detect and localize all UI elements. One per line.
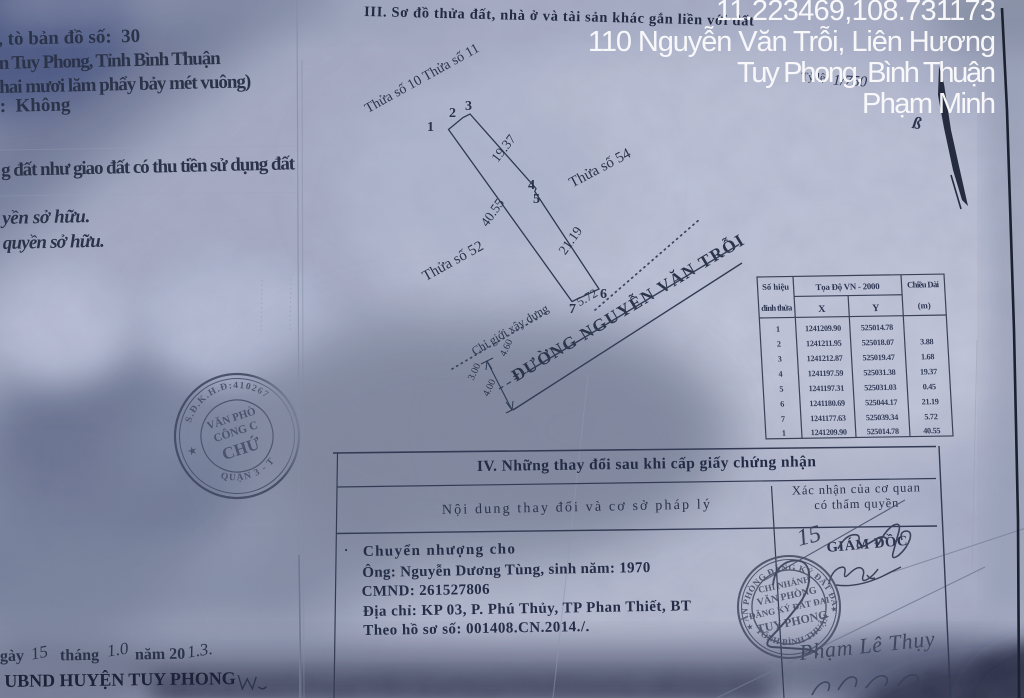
svg-text:4: 4 bbox=[528, 178, 535, 193]
svg-text:Y: Y bbox=[872, 303, 881, 314]
svg-text:(m): (m) bbox=[917, 300, 931, 310]
svg-text:Phạm Minh: Phạm Minh bbox=[862, 88, 996, 120]
svg-text:1241177.63: 1241177.63 bbox=[810, 414, 846, 424]
svg-text:19.37: 19.37 bbox=[920, 367, 938, 376]
svg-text:CMND: 261527806: CMND: 261527806 bbox=[361, 582, 490, 600]
svg-text:1241197.31: 1241197.31 bbox=[808, 384, 844, 394]
svg-text:năm 20: năm 20 bbox=[135, 646, 185, 664]
svg-text:11.223469,108.731173: 11.223469,108.731173 bbox=[716, 0, 996, 27]
svg-text:2: 2 bbox=[777, 340, 782, 349]
svg-text:4: 4 bbox=[778, 370, 783, 379]
svg-text:1.3.: 1.3. bbox=[186, 639, 214, 662]
svg-text:1: 1 bbox=[782, 429, 787, 438]
svg-text:1241209.90: 1241209.90 bbox=[805, 324, 842, 334]
svg-text:7: 7 bbox=[781, 415, 786, 424]
svg-text:1241197.59: 1241197.59 bbox=[807, 369, 843, 379]
svg-text:1: 1 bbox=[427, 120, 434, 135]
svg-text:525014.78: 525014.78 bbox=[861, 323, 894, 332]
svg-text:: Không: : Không bbox=[0, 94, 71, 117]
svg-text:3: 3 bbox=[465, 99, 472, 114]
svg-text:Tuy Phong, Bình Thuận: Tuy Phong, Bình Thuận bbox=[737, 57, 996, 89]
svg-text:5: 5 bbox=[533, 192, 540, 207]
svg-text:gày: gày bbox=[0, 648, 24, 665]
svg-text:1: 1 bbox=[776, 325, 781, 334]
svg-text:quyền sở hữu.: quyền sở hữu. bbox=[3, 231, 105, 254]
svg-text:6: 6 bbox=[600, 287, 607, 302]
svg-text:5: 5 bbox=[779, 385, 784, 394]
svg-text:6: 6 bbox=[780, 400, 785, 409]
svg-text:1241211.95: 1241211.95 bbox=[806, 339, 842, 349]
svg-text:UBND HUYỆN TUY PHONG: UBND HUYỆN TUY PHONG bbox=[4, 667, 236, 691]
svg-text:3.88: 3.88 bbox=[920, 337, 934, 346]
svg-text:2: 2 bbox=[449, 106, 456, 121]
svg-text:X: X bbox=[818, 304, 827, 315]
svg-text:525031.03: 525031.03 bbox=[864, 383, 897, 392]
svg-text:có thẩm quyền: có thẩm quyền bbox=[814, 496, 899, 512]
svg-text:Tọa Độ VN - 2000: Tọa Độ VN - 2000 bbox=[815, 281, 880, 292]
svg-text:525039.34: 525039.34 bbox=[866, 413, 899, 422]
svg-text:525018.07: 525018.07 bbox=[861, 338, 894, 347]
svg-text:40.55: 40.55 bbox=[923, 426, 941, 435]
svg-text:525014.78: 525014.78 bbox=[866, 427, 899, 436]
svg-text:15: 15 bbox=[29, 642, 49, 664]
svg-text:0.45: 0.45 bbox=[922, 382, 936, 391]
svg-text:Chuyển nhượng cho: Chuyển nhượng cho bbox=[363, 541, 515, 560]
svg-text:·: · bbox=[344, 542, 349, 557]
svg-text:Số hiệu: Số hiệu bbox=[762, 282, 790, 292]
svg-text:21.19: 21.19 bbox=[921, 397, 939, 406]
svg-text:1.0: 1.0 bbox=[106, 639, 130, 661]
svg-text:1241212.87: 1241212.87 bbox=[806, 354, 843, 364]
svg-text:1241209.90: 1241209.90 bbox=[811, 428, 848, 438]
svg-text:525031.38: 525031.38 bbox=[863, 368, 896, 377]
svg-text:, tò bản đồ số: 30: , tò bản đồ số: 30 bbox=[0, 26, 140, 50]
svg-text:Chiều Dài: Chiều Dài bbox=[907, 279, 940, 290]
svg-text:đỉnh thửa: đỉnh thửa bbox=[761, 302, 793, 312]
svg-text:525044.17: 525044.17 bbox=[865, 398, 898, 407]
svg-text:5.72: 5.72 bbox=[924, 412, 938, 421]
svg-text:yền sở hữu.: yền sở hữu. bbox=[0, 206, 90, 229]
svg-text:525019.47: 525019.47 bbox=[862, 353, 895, 362]
svg-text:1241180.69: 1241180.69 bbox=[809, 399, 845, 409]
svg-text:7: 7 bbox=[569, 302, 576, 317]
svg-text:110 Nguyễn Văn Trỗi, Liên Hươn: 110 Nguyễn Văn Trỗi, Liên Hương bbox=[588, 25, 996, 58]
svg-text:3: 3 bbox=[777, 355, 782, 364]
svg-text:tháng: tháng bbox=[60, 647, 99, 664]
svg-text:1.68: 1.68 bbox=[921, 352, 935, 361]
